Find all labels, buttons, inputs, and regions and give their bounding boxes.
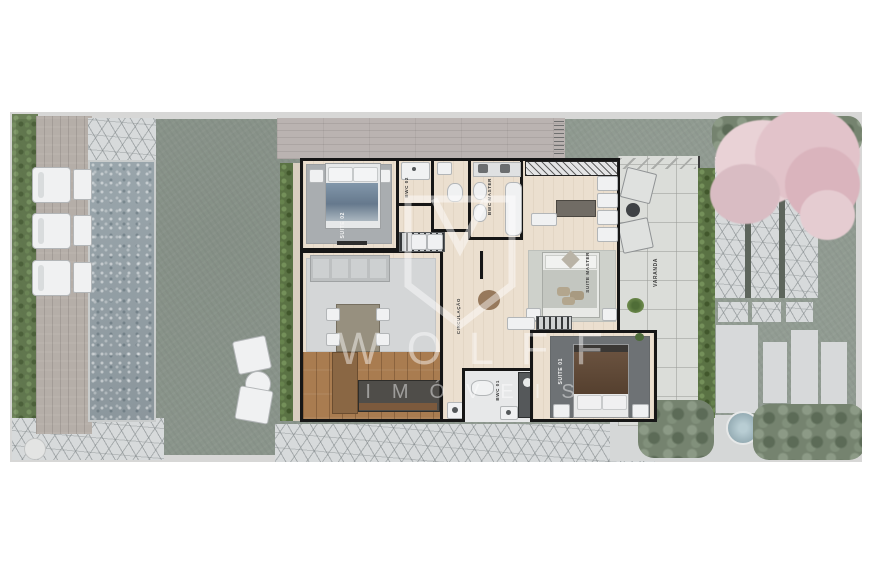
suite-master-bed (542, 252, 600, 318)
watermark-brand: WOLFF (290, 326, 650, 371)
closet-drawers (531, 213, 557, 226)
shrubs-bottom-right (753, 404, 862, 460)
paver-slab (791, 330, 818, 406)
paver-slab (716, 325, 758, 413)
vanity-sink (500, 164, 510, 173)
floorplan-image: VARANDA (0, 0, 870, 580)
garden-armchair (234, 385, 273, 424)
paver-slab (821, 342, 847, 407)
watermark-tagline: IMÓVEIS (310, 382, 630, 402)
suite-master-label: SUITE MASTER (586, 252, 591, 293)
vanity-sink (478, 164, 488, 173)
sun-lounger (32, 260, 71, 296)
dining-chair (326, 308, 340, 321)
rear-deck (277, 118, 565, 159)
lounger-side-table (73, 262, 92, 293)
varanda-lounge-chair (617, 217, 654, 254)
dining-chair (376, 308, 390, 321)
varanda-coffee-table (626, 203, 640, 217)
stepping-stone (786, 302, 813, 322)
paver-slab (763, 342, 787, 403)
bed-bench (337, 241, 367, 245)
nightstand (309, 169, 324, 183)
closet-module (597, 210, 618, 225)
varanda-label: VARANDA (654, 258, 659, 287)
stepping-stone (752, 302, 781, 322)
stone-path-pool-top (88, 118, 156, 164)
closet-island (556, 200, 596, 217)
blossom-tree (710, 164, 780, 224)
closet-wardrobe (525, 161, 618, 176)
varanda-plant (627, 298, 644, 313)
garden-armchair (232, 335, 272, 375)
closet-module (597, 227, 618, 242)
stone-path-house-front (275, 424, 655, 462)
blossom-tree (800, 190, 855, 240)
suite02-bed (325, 163, 381, 229)
swimming-pool (90, 162, 154, 420)
shower-drain (412, 167, 416, 171)
suite02-label: SUITE 02 (341, 212, 346, 238)
lounger-side-table (73, 169, 92, 200)
stepping-stone (718, 302, 748, 322)
washbasin (437, 162, 452, 175)
sofa (310, 255, 390, 282)
washbasin (500, 406, 518, 420)
nightstand (632, 404, 649, 418)
watermark-logo-icon (398, 193, 522, 333)
nightstand (553, 404, 570, 418)
deck-ladder (554, 121, 564, 154)
nightstand (602, 308, 617, 321)
sun-lounger (32, 167, 71, 203)
sun-lounger (32, 213, 71, 249)
hedge-house-side (280, 163, 293, 421)
garden-stone (24, 438, 46, 460)
site-plan: VARANDA (10, 112, 862, 462)
lounger-side-table (73, 215, 92, 246)
closet-module (597, 193, 618, 208)
closet-module (597, 176, 618, 191)
